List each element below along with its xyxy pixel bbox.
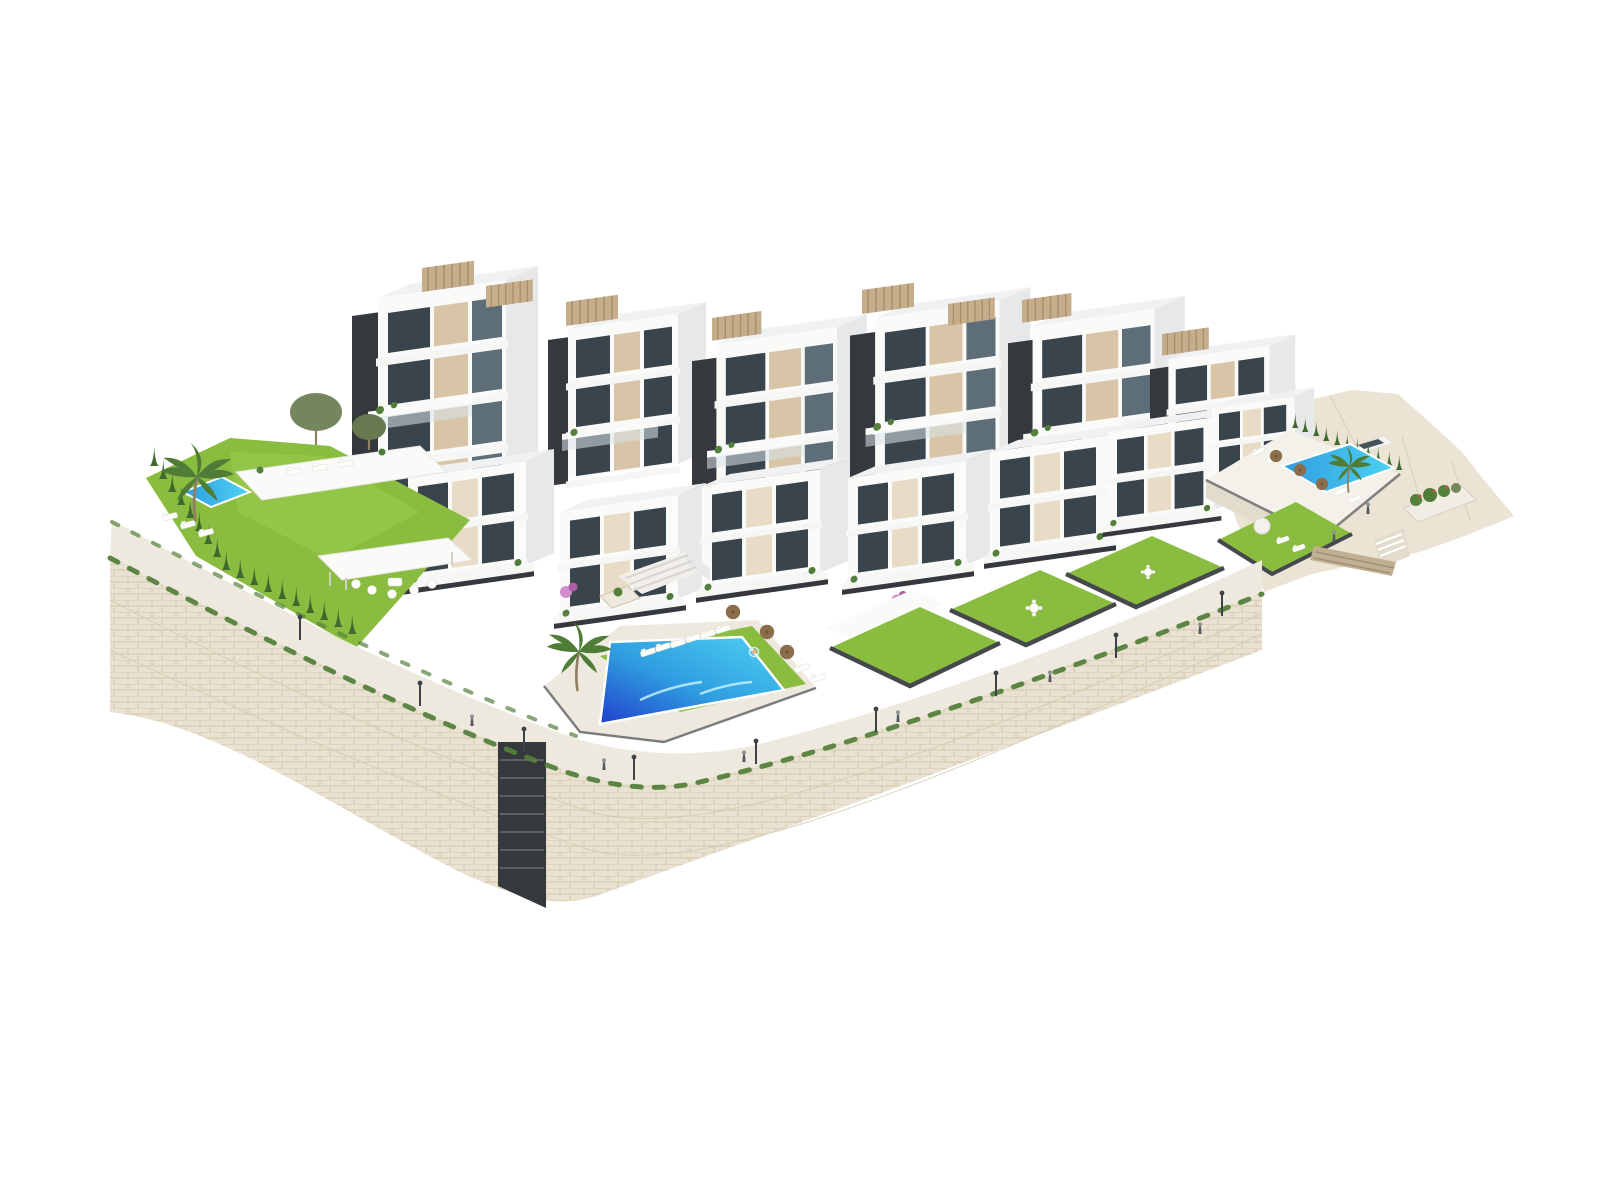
parasol [1294,464,1306,476]
parasol [726,605,740,619]
terraced-house-3 [696,457,848,603]
garage-door [498,742,546,908]
render-scene: Aerial 3D render of a white modern hills… [0,0,1600,1200]
architectural-render-canvas: Aerial 3D render of a white modern hills… [0,0,1600,1200]
parasol [1270,450,1282,462]
outdoor-table [388,578,402,586]
parasol [1316,478,1328,490]
parasol [760,625,774,639]
planter-shrub [614,588,623,597]
white-parasol [1254,518,1270,534]
parasol [780,645,794,659]
terraced-house-4 [842,449,994,595]
